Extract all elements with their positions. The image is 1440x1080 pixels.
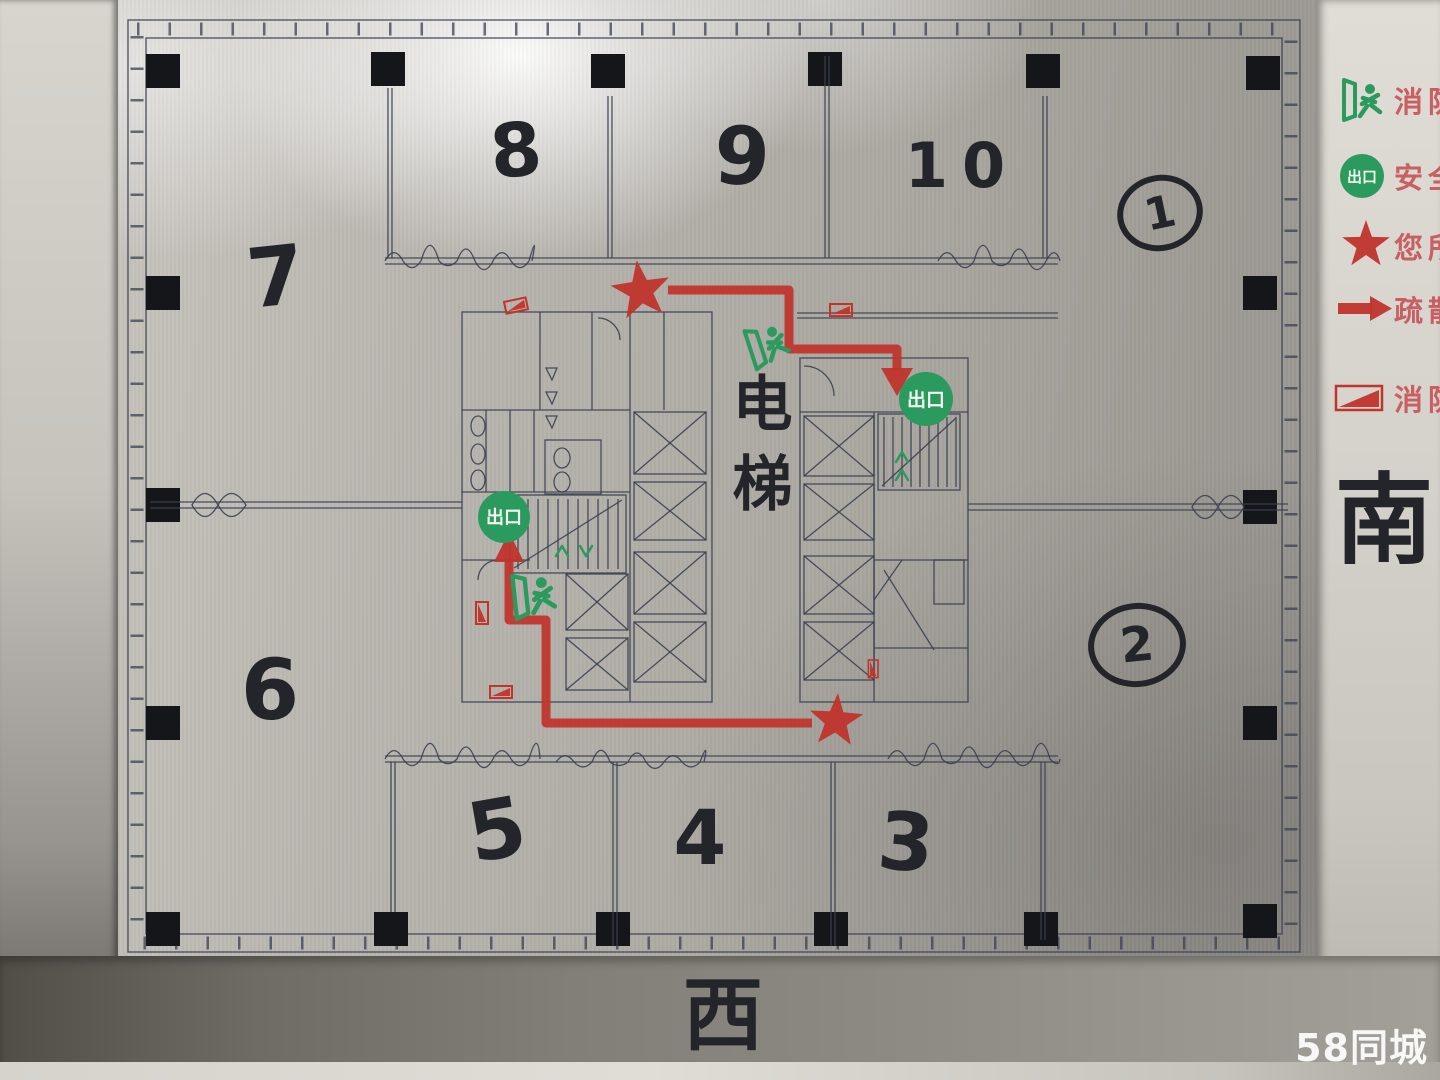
- legend-label-your-location: 您所: [1394, 225, 1440, 267]
- legend-label-fire-hydrant: 消防: [1394, 377, 1440, 419]
- svg-text:出口: 出口: [486, 507, 522, 529]
- exit-circle-left: 出口: [478, 491, 530, 543]
- elevator-shafts: [566, 412, 874, 690]
- your-location-star-top: [611, 260, 669, 318]
- zone-2-number: 2: [1117, 615, 1156, 674]
- legend-icon-evacuation-arrow: [1338, 296, 1392, 321]
- stairwell-right: [878, 414, 960, 490]
- legend-label-safety-exit: 安全: [1394, 155, 1440, 197]
- site-watermark: 58同城: [1295, 1017, 1428, 1072]
- exit-sign-runman-top: [745, 320, 792, 369]
- legend-icon-safety-exit: 出口: [1340, 154, 1384, 198]
- room-label-6: 6: [241, 648, 299, 732]
- elevator-label: 电梯: [727, 372, 787, 532]
- evacuation-route-bottom: [494, 532, 812, 723]
- room-label-4: 4: [674, 800, 727, 876]
- exit-circle-right: 出口: [899, 372, 953, 426]
- compass-south-label: 南: [1335, 472, 1433, 570]
- legend-icon-fire-hydrant: [1336, 386, 1382, 410]
- svg-text:出口: 出口: [907, 388, 945, 411]
- legend-icon-fire-escape: [1344, 80, 1380, 120]
- legend-icon-location-star: [1342, 220, 1390, 265]
- room-label-7: 7: [243, 234, 308, 322]
- restroom-fixtures: [462, 368, 630, 494]
- exit-sign-runman-left: [512, 572, 555, 619]
- room-label-10: 10: [905, 135, 1019, 197]
- compass-west-label: 西: [683, 976, 763, 1056]
- room-label-9: 9: [712, 116, 772, 199]
- legend-label-fire-escape: 消防: [1394, 79, 1440, 121]
- evacuation-plan-photo: 出口 出口 出口 8 9 10 7 6 5 4 3 1 2 电梯 南 西: [0, 0, 1440, 1080]
- svg-text:出口: 出口: [1347, 168, 1377, 186]
- room-label-3: 3: [875, 801, 937, 886]
- zone-1-number: 1: [1140, 185, 1181, 241]
- room-label-8: 8: [487, 112, 545, 190]
- your-location-star-bottom: [810, 693, 863, 745]
- legend-label-evac-direction: 疏散: [1394, 288, 1440, 330]
